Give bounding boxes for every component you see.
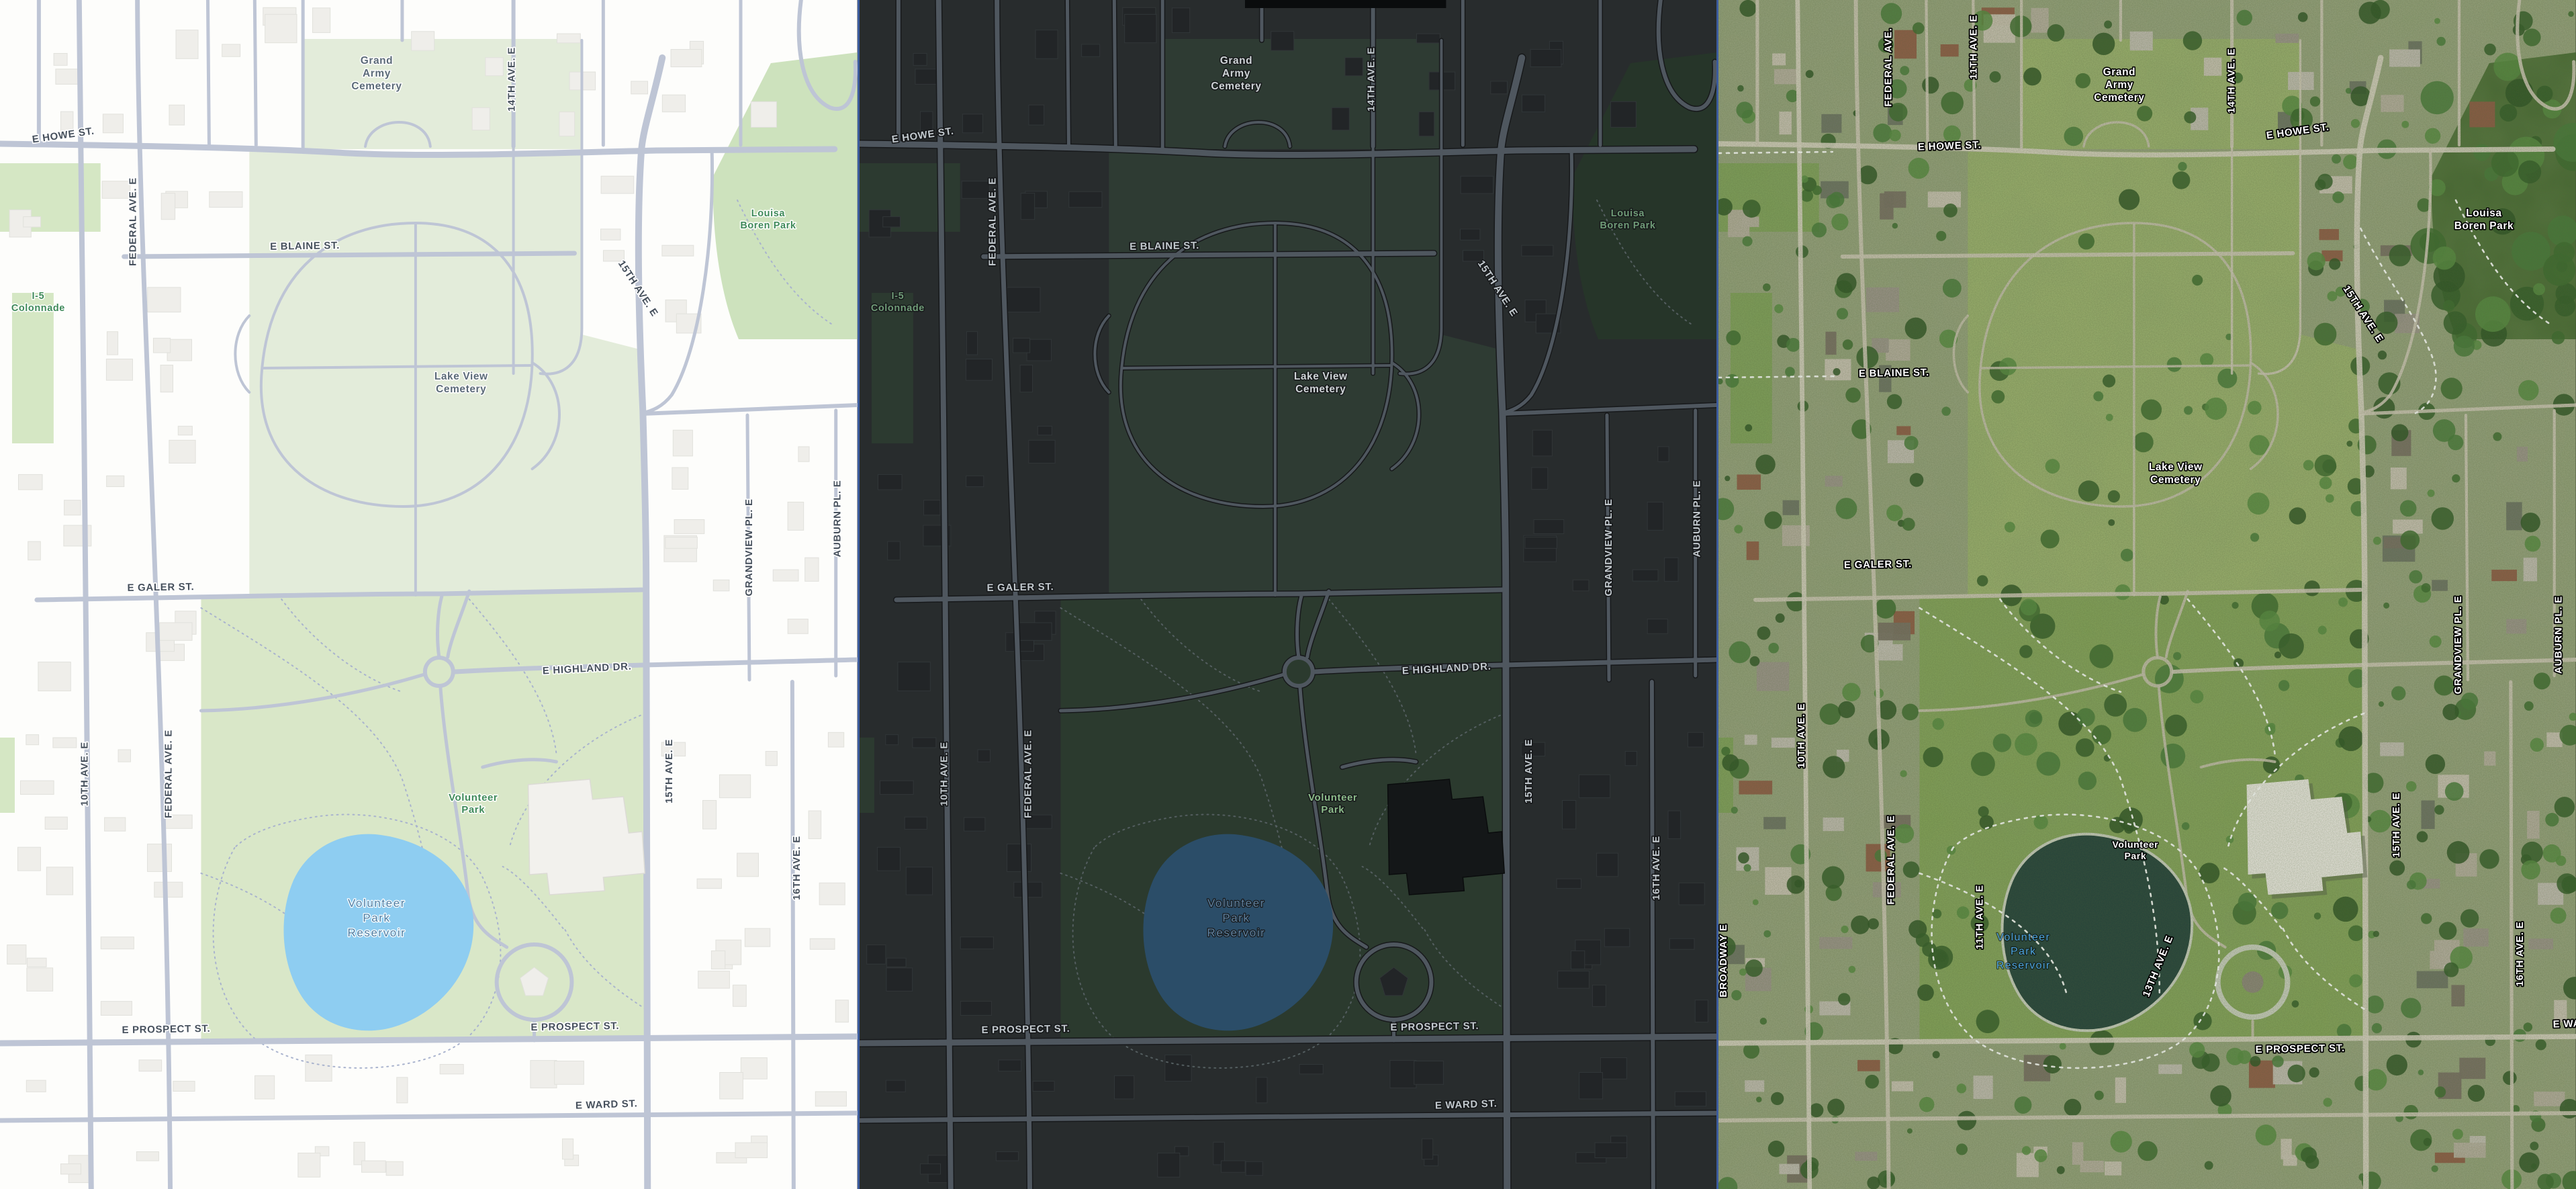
dark-map-canvas: E HOWE ST.E BLAINE ST.FEDERAL AVE. E14TH… [860, 0, 1717, 1189]
map-label: E WARD ST. [2553, 1016, 2576, 1030]
map-label: E GALER ST. [1844, 558, 1912, 571]
map-label: E BLAINE ST. [1130, 240, 1199, 253]
map-label: AUBURN PL. E [1691, 480, 1702, 558]
map-label: E WARD ST. [576, 1098, 638, 1111]
map-label: 10TH AVE. E [938, 742, 950, 806]
map-label: E PROSPECT ST. [531, 1020, 619, 1033]
map-label: AUBURN PL. E [2553, 596, 2565, 674]
dark-roof-strip [1245, 0, 1446, 8]
street-map-light-panel[interactable]: E HOWE ST.E BLAINE ST.FEDERAL AVE. E14TH… [0, 0, 858, 1189]
map-label: 14TH AVE. E [2226, 48, 2238, 113]
map-label: 14TH AVE. E [506, 47, 518, 112]
map-label: 16TH AVE. E [2514, 921, 2526, 986]
street-map-dark-panel[interactable]: E HOWE ST.E BLAINE ST.FEDERAL AVE. E14TH… [858, 0, 1717, 1189]
map-label: FEDERAL AVE. E [128, 177, 139, 266]
map-label: FEDERAL AVE. E [1886, 815, 1897, 904]
map-label: E PROSPECT ST. [122, 1023, 210, 1036]
map-label: FEDERAL AVE. [1883, 28, 1894, 107]
map-label: GRANDVIEW PL. E [1603, 498, 1614, 596]
map-label: BROADWAY E [1718, 924, 1729, 998]
map-label: E GALER ST. [127, 581, 194, 594]
map-label: GRANDVIEW PL. E [743, 498, 755, 596]
map-label: 10TH AVE. E [79, 742, 91, 806]
map-label: 11TH AVE. E [1968, 15, 1980, 79]
map-label: 16TH AVE. E [1651, 836, 1662, 900]
map-label: 15TH AVE. E [1523, 739, 1534, 803]
map-label: 15TH AVE. E [663, 739, 675, 803]
map-label: 16TH AVE. E [791, 836, 802, 900]
map-label: E PROSPECT ST. [1390, 1020, 1479, 1033]
map-label: 10TH AVE. E [1796, 703, 1807, 768]
map-label: E HOWE ST. [1918, 139, 1982, 152]
map-label: FEDERAL AVE. E [986, 177, 998, 266]
satellite-grain-overlay [1718, 0, 2576, 1189]
map-label: E GALER ST. [986, 581, 1054, 594]
map-label: AUBURN PL. E [832, 480, 843, 558]
map-label: E PROSPECT ST. [981, 1023, 1070, 1036]
map-label: FEDERAL AVE. E [163, 730, 175, 818]
satellite-canvas: FEDERAL AVE.11TH AVE. E14TH AVE. EE HOWE… [1718, 0, 2576, 1189]
satellite-map-panel[interactable]: FEDERAL AVE.11TH AVE. E14TH AVE. EE HOWE… [1716, 0, 2576, 1189]
map-label: E BLAINE ST. [270, 240, 340, 253]
map-label: 11TH AVE. E [1974, 885, 1986, 949]
map-label: E PROSPECT ST. [2256, 1043, 2346, 1055]
light-map-canvas: E HOWE ST.E BLAINE ST.FEDERAL AVE. E14TH… [0, 0, 858, 1189]
map-label: E BLAINE ST. [1859, 367, 1929, 380]
map-label: GRANDVIEW PL. E [2452, 596, 2464, 695]
map-label: FEDERAL AVE. E [1022, 730, 1033, 818]
map-label: 15TH AVE. E [2391, 792, 2403, 857]
map-label: 14TH AVE. E [1365, 47, 1377, 112]
map-label: E WARD ST. [1434, 1098, 1497, 1111]
